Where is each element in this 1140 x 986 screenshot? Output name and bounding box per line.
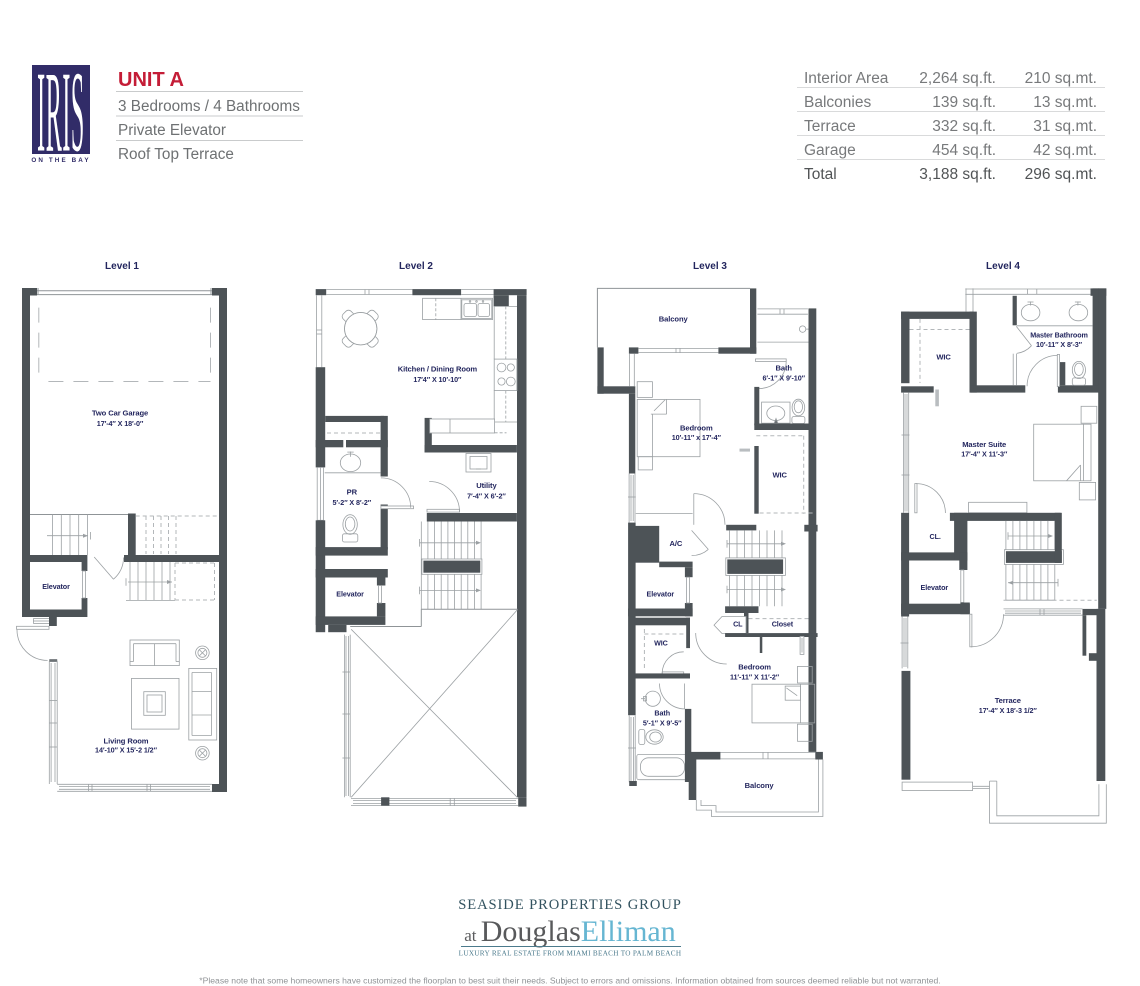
svg-text:14′-10″ X 15′-2 1/2″: 14′-10″ X 15′-2 1/2″ [95, 746, 158, 755]
svg-text:Master Bathroom: Master Bathroom [1030, 330, 1088, 339]
svg-text:210 sq.mt.: 210 sq.mt. [1025, 70, 1097, 87]
svg-text:7′-4″ X 6′-2″: 7′-4″ X 6′-2″ [467, 492, 506, 501]
svg-text:Elevator: Elevator [921, 583, 949, 592]
svg-text:Closet: Closet [772, 620, 794, 629]
svg-text:CL.: CL. [930, 532, 941, 541]
svg-text:Level 2: Level 2 [399, 261, 433, 272]
svg-text:332 sq.ft.: 332 sq.ft. [932, 118, 996, 135]
svg-text:10′-11″ X 8′-3″: 10′-11″ X 8′-3″ [1036, 340, 1083, 349]
svg-text:5′-1″ X 9′-5″: 5′-1″ X 9′-5″ [643, 718, 682, 727]
svg-text:139 sq.ft.: 139 sq.ft. [932, 94, 996, 111]
svg-text:296 sq.mt.: 296 sq.mt. [1025, 166, 1097, 183]
svg-text:Elevator: Elevator [42, 582, 70, 591]
svg-text:WIC: WIC [654, 638, 668, 647]
svg-text:Roof Top Terrace: Roof Top Terrace [118, 146, 234, 163]
svg-text:31 sq.mt.: 31 sq.mt. [1033, 118, 1097, 135]
svg-text:Terrace: Terrace [995, 696, 1021, 705]
svg-text:ON THE BAY: ON THE BAY [31, 157, 90, 164]
svg-text:PR: PR [347, 488, 358, 497]
svg-text:Elevator: Elevator [647, 589, 675, 598]
svg-text:A/C: A/C [670, 539, 683, 548]
svg-text:17′-4″ X 18′-0″: 17′-4″ X 18′-0″ [97, 419, 144, 428]
svg-text:SEASIDE PROPERTIES GROUP: SEASIDE PROPERTIES GROUP [458, 897, 681, 913]
svg-text:2,264 sq.ft.: 2,264 sq.ft. [919, 70, 996, 87]
svg-text:Level 4: Level 4 [986, 261, 1020, 272]
svg-text:11′-11″ X 11′-2″: 11′-11″ X 11′-2″ [730, 672, 780, 681]
svg-text:454 sq.ft.: 454 sq.ft. [932, 142, 996, 159]
svg-text:3 Bedrooms / 4 Bathrooms: 3 Bedrooms / 4 Bathrooms [118, 98, 300, 115]
svg-text:Interior Area: Interior Area [804, 70, 889, 87]
svg-text:Living Room: Living Room [104, 737, 149, 746]
svg-text:17′4″ X 10′-10″: 17′4″ X 10′-10″ [413, 375, 462, 384]
svg-text:5′-2″ X 8′-2″: 5′-2″ X 8′-2″ [332, 498, 371, 507]
svg-text:Private Elevator: Private Elevator [118, 122, 226, 139]
svg-text:Garage: Garage [804, 142, 856, 159]
svg-text:6′-1″ X 9′-10″: 6′-1″ X 9′-10″ [762, 373, 805, 382]
svg-text:Bath: Bath [775, 363, 792, 372]
svg-text:Two Car Garage: Two Car Garage [92, 409, 148, 418]
svg-text:17′-4″ X 18′-3 1/2″: 17′-4″ X 18′-3 1/2″ [979, 706, 1038, 715]
svg-text:Master Suite: Master Suite [962, 440, 1006, 449]
svg-text:Terrace: Terrace [804, 118, 856, 135]
svg-text:*Please note that some homeown: *Please note that some homeowners have c… [199, 976, 940, 986]
svg-text:Balconies: Balconies [804, 94, 871, 111]
svg-text:42 sq.mt.: 42 sq.mt. [1033, 142, 1097, 159]
svg-text:13 sq.mt.: 13 sq.mt. [1033, 94, 1097, 111]
svg-text:Total: Total [804, 166, 837, 183]
svg-text:10′-11″ x 17′-4″: 10′-11″ x 17′-4″ [672, 433, 722, 442]
svg-text:Elevator: Elevator [336, 589, 364, 598]
svg-text:WIC: WIC [772, 471, 787, 480]
svg-text:Level 1: Level 1 [105, 261, 139, 272]
svg-text:17′-4″ X 11′-3″: 17′-4″ X 11′-3″ [961, 450, 1008, 459]
svg-text:Bedroom: Bedroom [680, 423, 713, 432]
svg-text:Balcony: Balcony [659, 314, 689, 323]
svg-text:3,188 sq.ft.: 3,188 sq.ft. [919, 166, 996, 183]
svg-text:LUXURY REAL ESTATE FROM MIAMI: LUXURY REAL ESTATE FROM MIAMI BEACH TO P… [459, 950, 682, 958]
svg-text:Bath: Bath [654, 708, 670, 717]
svg-text:Utility: Utility [476, 481, 497, 490]
svg-text:Kitchen / Dining Room: Kitchen / Dining Room [398, 365, 478, 374]
svg-text:at DouglasElliman: at DouglasElliman [464, 915, 676, 948]
svg-text:Level 3: Level 3 [693, 261, 727, 272]
svg-text:UNIT A: UNIT A [118, 69, 184, 91]
svg-text:Balcony: Balcony [745, 781, 775, 790]
svg-text:WIC: WIC [936, 352, 951, 361]
svg-text:CL: CL [733, 620, 743, 629]
svg-text:Bedroom: Bedroom [738, 663, 771, 672]
